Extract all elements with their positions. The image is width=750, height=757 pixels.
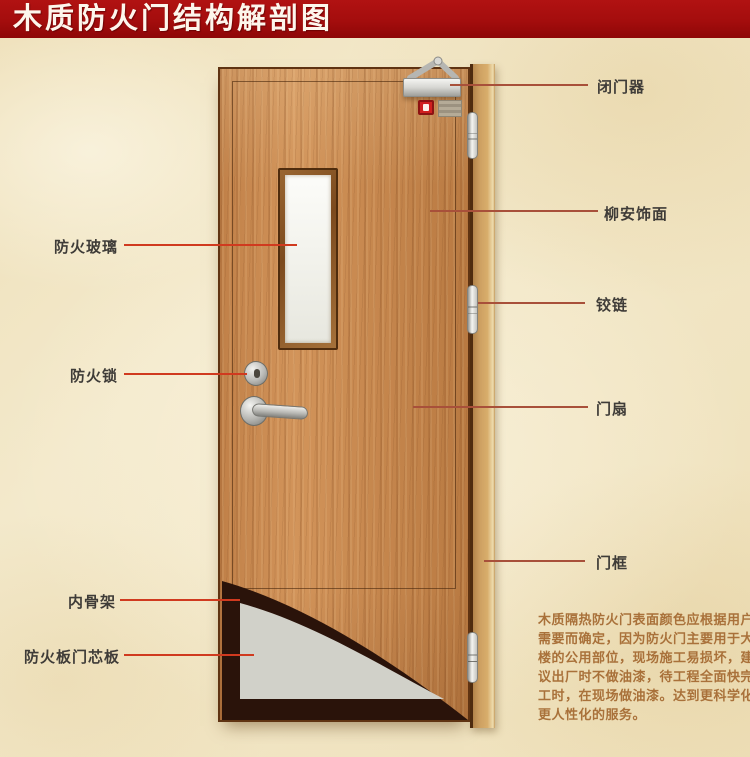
label-door-frame: 门框 — [596, 552, 628, 573]
product-description: 木质隔热防火门表面颜色应根据用户 需要而确定，因为防火门主要用于大 楼的公用部位… — [538, 610, 718, 724]
description-line: 需要而确定，因为防火门主要用于大 — [538, 629, 718, 648]
cutaway-section — [220, 69, 468, 720]
callout-line-skeleton — [120, 599, 240, 601]
description-line: 楼的公用部位，现场施工易损坏，建 — [538, 648, 718, 667]
label-core-panel: 防火板门芯板 — [24, 646, 120, 667]
closer-arm-elbow — [434, 57, 442, 65]
fire-door-anatomy-diagram: 木质防火门结构解剖图 — [0, 0, 750, 757]
callout-line-hinge — [478, 302, 585, 304]
callout-line-fire-lock — [124, 373, 247, 375]
label-door-closer: 闭门器 — [597, 76, 645, 97]
description-line: 工时，在现场做油漆。达到更科学化 — [538, 686, 718, 705]
label-fire-glass: 防火玻璃 — [54, 236, 118, 257]
door-frame — [470, 64, 495, 728]
label-door-leaf: 门扇 — [596, 398, 628, 419]
fireproof-core-panel — [240, 603, 444, 699]
label-skeleton: 内骨架 — [68, 591, 116, 612]
callout-line-core-panel — [124, 654, 254, 656]
title-banner: 木质防火门结构解剖图 — [0, 0, 750, 38]
label-veneer: 柳安饰面 — [604, 203, 668, 224]
callout-line-fire-glass — [124, 244, 297, 246]
description-line: 议出厂时不做油漆，待工程全面快完 — [538, 667, 718, 686]
callout-line-veneer — [430, 210, 598, 212]
label-hinge: 铰链 — [596, 294, 628, 315]
callout-line-door-closer — [450, 84, 588, 86]
hinge-middle — [467, 285, 478, 334]
callout-line-door-leaf — [413, 406, 588, 408]
label-fire-lock: 防火锁 — [70, 365, 118, 386]
description-line: 更人性化的服务。 — [538, 705, 718, 724]
hinge-top — [467, 112, 478, 159]
page-title: 木质防火门结构解剖图 — [0, 0, 333, 38]
callout-line-door-frame — [484, 560, 585, 562]
door-leaf — [218, 67, 470, 722]
description-line: 木质隔热防火门表面颜色应根据用户 — [538, 610, 718, 629]
hinge-bottom — [467, 632, 478, 683]
